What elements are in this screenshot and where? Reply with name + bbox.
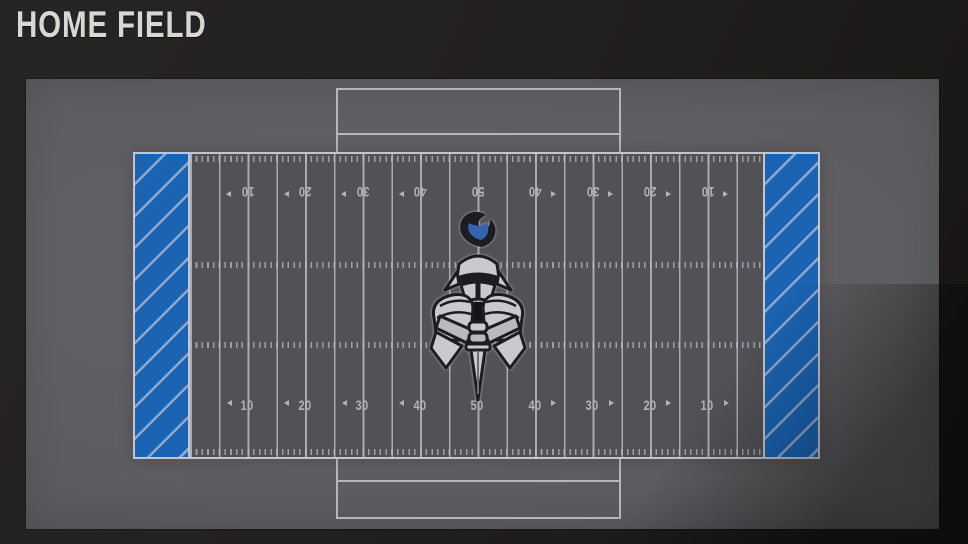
playfield: 10 20 30 40 50 40 30 20 10 10 20 30 40 5… xyxy=(190,154,765,457)
sideline-bench-box-top xyxy=(336,88,621,154)
hash-marks-bottom xyxy=(190,449,765,455)
bench-divider-line xyxy=(338,133,619,135)
yard-number: 10 xyxy=(228,183,268,199)
yard-number: 30 xyxy=(573,183,613,199)
yard-number: 40 xyxy=(515,183,555,199)
yard-number: 10 xyxy=(688,183,728,199)
yard-number: 30 xyxy=(573,398,613,414)
page-title: HOME FIELD xyxy=(16,4,207,46)
sideline-bench-box-bottom xyxy=(336,459,621,519)
yard-number: 20 xyxy=(285,398,325,414)
knight-sword-crest-icon xyxy=(426,210,530,402)
endzone-right xyxy=(763,154,818,457)
hash-marks-top xyxy=(190,156,765,162)
yard-number: 40 xyxy=(400,183,440,199)
endzone-left xyxy=(135,154,190,457)
yard-number-midfield: 50 xyxy=(458,183,498,199)
bench-divider-line xyxy=(338,480,619,482)
football-field: 10 20 30 40 50 40 30 20 10 10 20 30 40 5… xyxy=(133,152,820,459)
yard-number: 10 xyxy=(688,398,728,414)
yard-number: 30 xyxy=(343,398,383,414)
yard-number: 10 xyxy=(228,398,268,414)
yard-numbers-top-row: 10 20 30 40 50 40 30 20 10 xyxy=(190,183,765,199)
field-preview-panel: 10 20 30 40 50 40 30 20 10 10 20 30 40 5… xyxy=(26,79,939,529)
yard-number: 20 xyxy=(285,183,325,199)
yard-number: 20 xyxy=(630,183,670,199)
yard-number: 30 xyxy=(343,183,383,199)
yard-number: 20 xyxy=(630,398,670,414)
